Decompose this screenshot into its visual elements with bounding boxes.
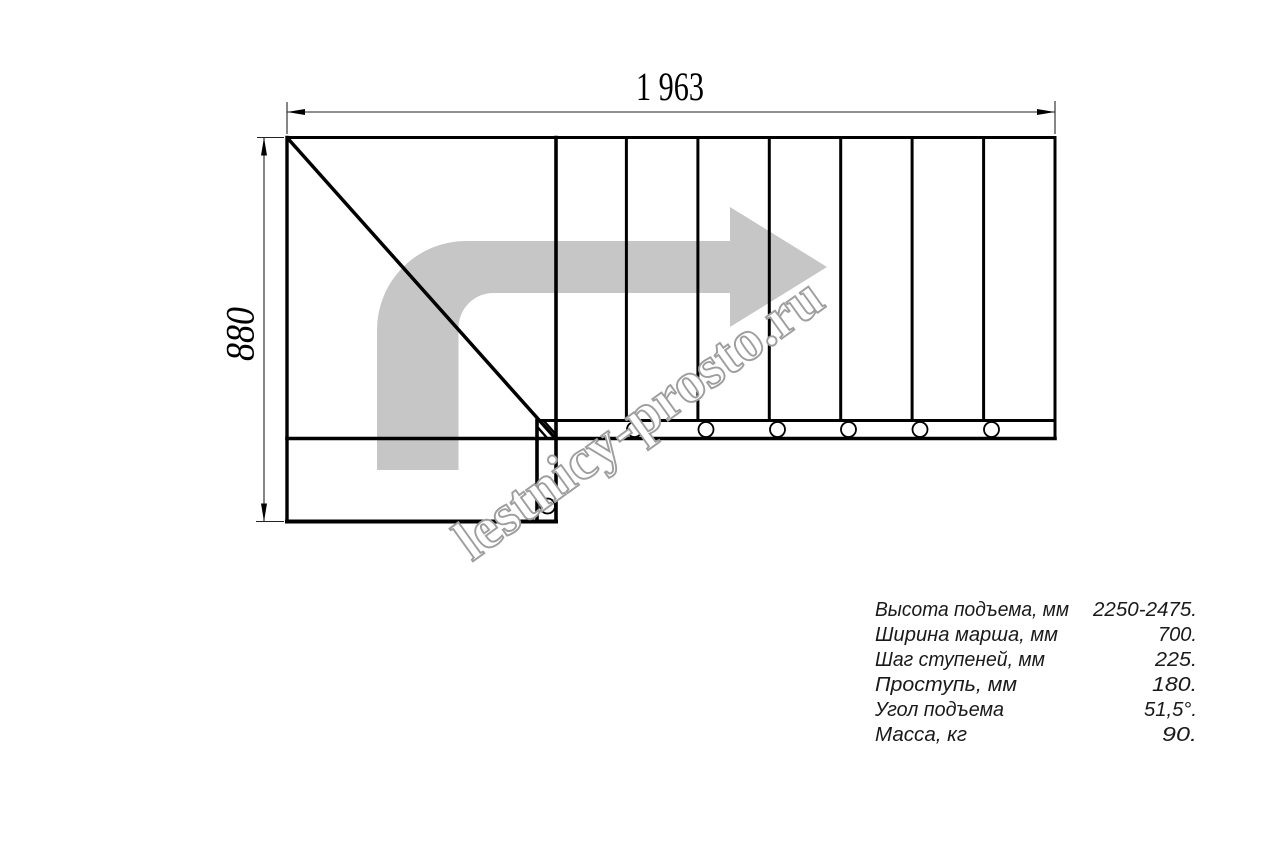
svg-text:180.: 180. [1152,674,1197,696]
svg-text:90.: 90. [1162,724,1197,746]
svg-text:880: 880 [218,307,263,361]
svg-text:Масса, кг: Масса, кг [875,724,967,746]
svg-text:lestnicy-prosto.ru: lestnicy-prosto.ru [442,264,835,573]
svg-text:51,5°.: 51,5°. [1144,699,1197,721]
svg-text:Шаг ступеней, мм: Шаг ступеней, мм [875,649,1045,671]
svg-text:Ширина марша, мм: Ширина марша, мм [875,624,1058,646]
svg-text:Угол подъема: Угол подъема [874,699,1004,721]
svg-text:2250-2475.: 2250-2475. [1092,599,1197,621]
svg-text:Высота подъема, мм: Высота подъема, мм [875,599,1069,621]
svg-text:225.: 225. [1154,649,1197,671]
svg-text:700.: 700. [1158,624,1197,646]
svg-text:Проступь, мм: Проступь, мм [875,674,1017,696]
svg-text:1 963: 1 963 [636,64,704,109]
